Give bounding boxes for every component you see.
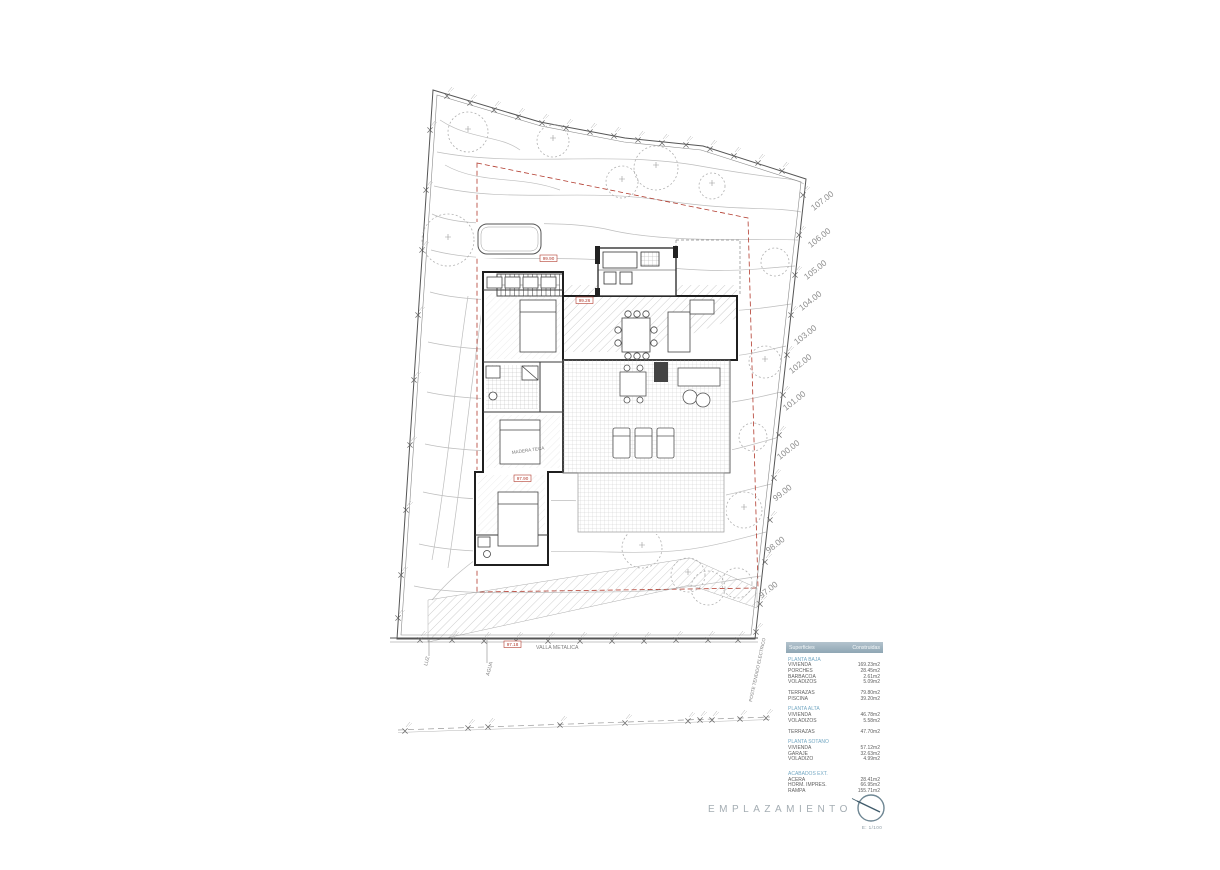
drawing-sheet: 107.00 106.00 105.00 104.00 103.00 102.0… <box>0 0 1220 870</box>
svg-text:97.00: 97.00 <box>757 579 780 600</box>
table-row: VOLADIZOS5.09m2 <box>786 680 883 686</box>
surfaces-table-header: Superficies Construidas <box>786 642 883 653</box>
luz-label: LUZ <box>423 656 431 667</box>
contour-elevation-labels: 107.00 106.00 105.00 104.00 103.00 102.0… <box>757 189 836 601</box>
svg-text:102.00: 102.00 <box>787 352 814 376</box>
deck-terrace <box>563 360 730 532</box>
svg-text:104.00: 104.00 <box>797 289 824 313</box>
svg-text:98.00: 98.00 <box>764 534 787 555</box>
svg-text:99.90: 99.90 <box>543 256 555 261</box>
table-row: TERRAZAS47.70m2 <box>786 730 883 736</box>
table-row: VOLADIZOS5.58m2 <box>786 719 883 725</box>
ramp-hatch <box>428 558 757 642</box>
svg-text:100.00: 100.00 <box>775 438 802 462</box>
svg-text:101.00: 101.00 <box>781 389 808 413</box>
barbacoa-block <box>595 246 678 296</box>
fence-label: VALLA METALICA <box>536 645 579 651</box>
svg-text:106.00: 106.00 <box>806 226 833 250</box>
svg-text:103.00: 103.00 <box>792 323 819 347</box>
table-row: RAMPA155.71m2 <box>786 789 883 795</box>
surfaces-table: Superficies Construidas PLANTA BAJA VIVI… <box>786 642 883 795</box>
header-construidas: Construidas <box>852 645 880 651</box>
compass-icon <box>852 795 884 821</box>
agua-label: AGUA <box>485 661 495 677</box>
table-row: VOLADIZO4.99m2 <box>786 757 883 763</box>
header-superficies: Superficies <box>789 645 815 651</box>
drawing-title: EMPLAZAMIENTO <box>708 804 850 815</box>
table-row: PISCINA39.20m2 <box>786 697 883 703</box>
svg-text:99.26: 99.26 <box>579 298 591 303</box>
svg-text:107.00: 107.00 <box>809 189 836 213</box>
svg-text:105.00: 105.00 <box>802 258 829 282</box>
street-survey-line <box>398 709 773 734</box>
drawing-scale: E: 1/100 <box>850 825 894 830</box>
svg-text:97.90: 97.90 <box>517 476 529 481</box>
site-plan-canvas: 107.00 106.00 105.00 104.00 103.00 102.0… <box>0 0 1220 870</box>
svg-text:97.18: 97.18 <box>507 642 519 647</box>
poste-label: POSTE TENDIDO ELECTRICO <box>748 637 766 702</box>
svg-text:99.00: 99.00 <box>771 482 794 503</box>
